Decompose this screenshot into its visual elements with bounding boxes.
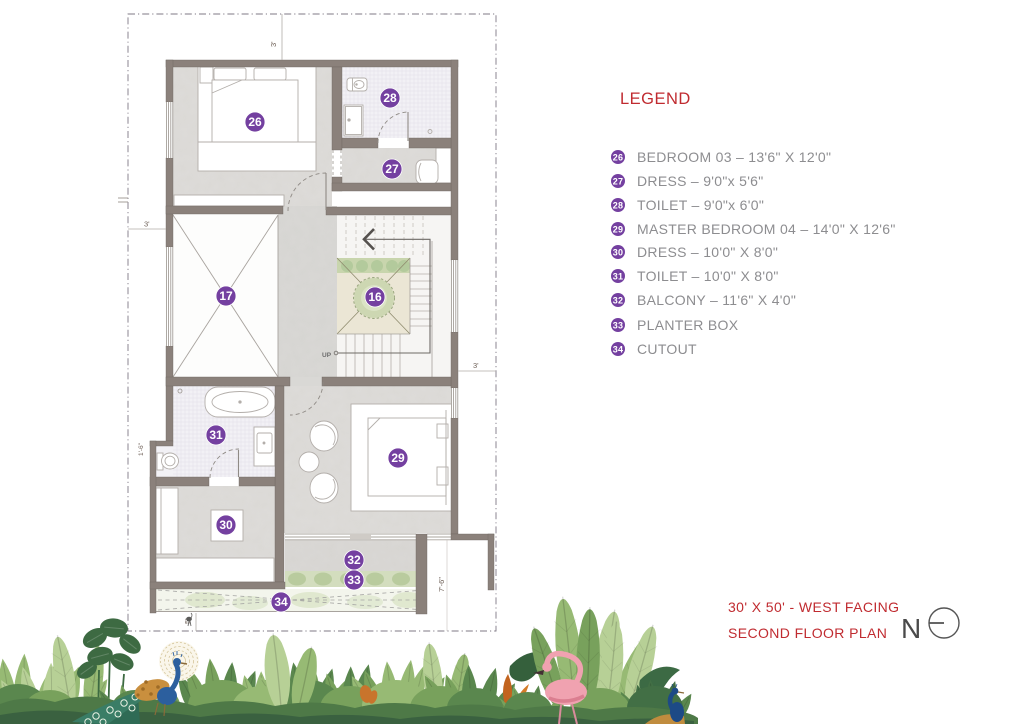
svg-text:MASTER BEDROOM 04 – 14'0" X 12: MASTER BEDROOM 04 – 14'0" X 12'6"	[637, 221, 896, 237]
svg-text:34: 34	[613, 345, 624, 355]
svg-text:DRESS – 9'0"x 5'6": DRESS – 9'0"x 5'6"	[637, 173, 764, 189]
svg-text:29: 29	[391, 451, 405, 465]
svg-text:32: 32	[613, 296, 624, 306]
svg-text:PLANTER BOX: PLANTER BOX	[637, 317, 739, 333]
svg-text:BEDROOM 03 – 13'6" X 12'0": BEDROOM 03 – 13'6" X 12'0"	[637, 149, 831, 165]
svg-text:32: 32	[347, 553, 361, 567]
svg-text:29: 29	[613, 225, 624, 235]
svg-text:28: 28	[383, 91, 397, 105]
svg-text:26: 26	[613, 153, 624, 163]
svg-text:TOILET – 9'0"x 6'0": TOILET – 9'0"x 6'0"	[637, 197, 764, 213]
svg-text:7'-6": 7'-6"	[437, 577, 446, 592]
svg-text:N: N	[901, 613, 921, 644]
svg-text:31: 31	[613, 272, 624, 282]
svg-text:16: 16	[368, 290, 382, 304]
svg-text:33: 33	[613, 321, 624, 331]
svg-text:30' X 50' - WEST FACING: 30' X 50' - WEST FACING	[728, 599, 899, 615]
svg-text:1'-6": 1'-6"	[138, 442, 145, 456]
svg-text:TOILET – 10'0" X 8'0": TOILET – 10'0" X 8'0"	[637, 268, 779, 284]
svg-text:28: 28	[613, 201, 624, 211]
svg-text:26: 26	[248, 115, 262, 129]
svg-text:SECOND FLOOR PLAN: SECOND FLOOR PLAN	[728, 625, 887, 641]
svg-text:30: 30	[613, 248, 624, 258]
svg-text:27: 27	[613, 177, 624, 187]
svg-text:3': 3'	[473, 361, 479, 370]
svg-text:3': 3'	[269, 41, 278, 47]
svg-text:17: 17	[219, 289, 233, 303]
svg-text:3': 3'	[144, 220, 150, 229]
svg-text:DRESS – 10'0" X 8'0": DRESS – 10'0" X 8'0"	[637, 244, 778, 260]
svg-text:34: 34	[274, 595, 288, 609]
svg-text:CUTOUT: CUTOUT	[637, 341, 697, 357]
svg-text:27: 27	[385, 162, 399, 176]
svg-text:LEGEND: LEGEND	[620, 90, 691, 108]
svg-text:BALCONY – 11'6" X 4'0": BALCONY – 11'6" X 4'0"	[637, 292, 796, 308]
svg-text:33: 33	[347, 573, 361, 587]
svg-text:UP: UP	[322, 352, 332, 359]
svg-text:30: 30	[219, 518, 233, 532]
svg-text:31: 31	[209, 428, 223, 442]
